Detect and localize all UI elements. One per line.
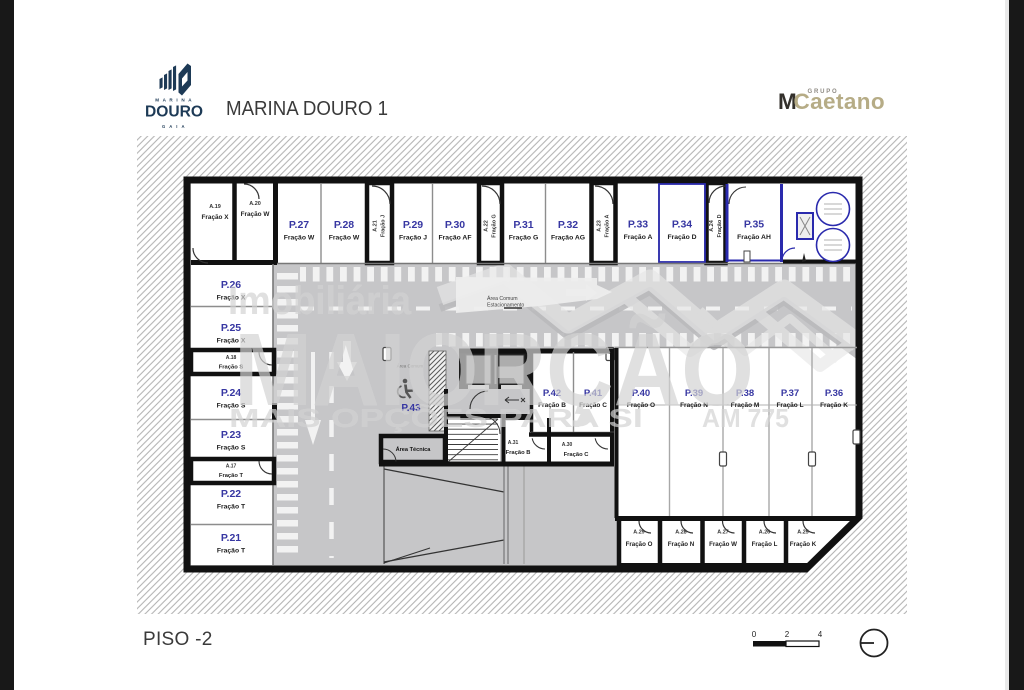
svg-text:Fração T: Fração T — [217, 504, 246, 511]
svg-text:Fração J: Fração J — [381, 215, 387, 237]
svg-text:A.25: A.25 — [797, 530, 808, 536]
svg-text:Fração W: Fração W — [284, 235, 315, 242]
svg-text:P.32: P.32 — [558, 219, 578, 231]
svg-text:Área Técnica: Área Técnica — [396, 446, 432, 453]
svg-text:Fração A: Fração A — [624, 234, 653, 241]
svg-text:PISO -2: PISO -2 — [143, 629, 213, 650]
svg-text:DOURO: DOURO — [145, 104, 203, 121]
svg-text:Fração W: Fração W — [329, 235, 360, 242]
svg-text:Caetano: Caetano — [794, 89, 886, 114]
svg-text:Fração N: Fração N — [668, 541, 695, 548]
svg-text:A.28: A.28 — [675, 530, 686, 536]
svg-text:Fração W: Fração W — [241, 211, 271, 218]
svg-text:A.27: A.27 — [717, 530, 728, 536]
svg-text:MAIS OPÇÕES PARA SI: MAIS OPÇÕES PARA SI — [229, 403, 643, 433]
svg-text:2: 2 — [785, 630, 790, 639]
svg-text:A.19: A.19 — [209, 204, 221, 210]
svg-text:MARINA DOURO 1: MARINA DOURO 1 — [226, 98, 388, 120]
svg-text:A.31: A.31 — [508, 440, 519, 446]
svg-text:AM 775: AM 775 — [702, 403, 789, 433]
svg-text:Fração G: Fração G — [509, 235, 538, 242]
svg-text:G A I A: G A I A — [162, 124, 186, 129]
svg-text:P.28: P.28 — [334, 219, 354, 231]
svg-text:Fração W: Fração W — [709, 541, 737, 548]
svg-text:A.23: A.23 — [597, 220, 603, 231]
svg-text:P.35: P.35 — [744, 219, 764, 231]
svg-text:Fração J: Fração J — [399, 235, 427, 242]
svg-text:Fração S: Fração S — [217, 445, 246, 452]
svg-text:A.26: A.26 — [759, 530, 770, 536]
svg-text:P.34: P.34 — [672, 219, 692, 231]
svg-text:P.21: P.21 — [221, 532, 241, 544]
svg-text:Fração AH: Fração AH — [737, 234, 771, 241]
svg-text:M A R I N A: M A R I N A — [155, 98, 192, 103]
svg-text:P.37: P.37 — [781, 388, 799, 399]
svg-text:A.29: A.29 — [633, 530, 644, 536]
svg-text:A.24: A.24 — [709, 220, 715, 231]
svg-text:Fração C: Fração C — [564, 452, 590, 458]
svg-text:Fração A: Fração A — [605, 214, 611, 237]
svg-text:4: 4 — [818, 630, 823, 639]
svg-text:Fração L: Fração L — [752, 541, 778, 548]
svg-text:A.21: A.21 — [373, 220, 379, 231]
svg-text:0: 0 — [752, 630, 757, 639]
svg-text:Fração T: Fração T — [219, 473, 244, 479]
svg-text:A.30: A.30 — [562, 442, 573, 448]
svg-text:Fração O: Fração O — [626, 541, 653, 548]
svg-text:P.36: P.36 — [825, 388, 843, 399]
svg-text:A.17: A.17 — [226, 464, 237, 470]
svg-text:A.20: A.20 — [249, 201, 261, 207]
svg-text:Fração AF: Fração AF — [439, 235, 472, 242]
svg-text:P.33: P.33 — [628, 219, 648, 231]
svg-text:P.29: P.29 — [403, 219, 423, 231]
svg-text:Fração T: Fração T — [217, 548, 246, 555]
svg-text:P.22: P.22 — [221, 488, 241, 500]
svg-text:Fração D: Fração D — [667, 234, 696, 241]
svg-text:Fração K: Fração K — [820, 402, 848, 409]
svg-text:Fração X: Fração X — [202, 214, 230, 221]
svg-text:Fração G: Fração G — [492, 214, 498, 237]
svg-text:Fração K: Fração K — [790, 541, 817, 548]
svg-text:P.27: P.27 — [289, 219, 309, 231]
svg-text:Área Comum: Área Comum — [487, 295, 518, 302]
svg-text:A.22: A.22 — [484, 220, 490, 231]
svg-text:Fração B: Fração B — [506, 450, 531, 456]
svg-text:P.30: P.30 — [445, 219, 465, 231]
svg-text:Fração AG: Fração AG — [551, 235, 585, 242]
svg-text:Fração D: Fração D — [717, 214, 723, 237]
svg-text:P.31: P.31 — [513, 219, 533, 231]
